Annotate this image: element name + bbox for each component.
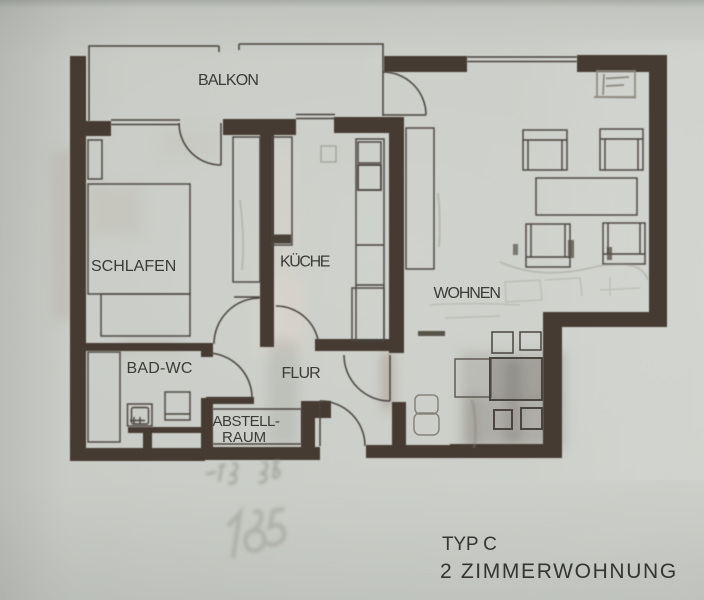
- svg-text:BALKON: BALKON: [198, 72, 258, 89]
- svg-text:SCHLAFEN: SCHLAFEN: [91, 258, 176, 275]
- svg-text:2 ZIMMERWOHNUNG: 2 ZIMMERWOHNUNG: [440, 560, 678, 583]
- svg-text:ABSTELL-: ABSTELL-: [213, 413, 280, 430]
- svg-text:TYP C: TYP C: [442, 534, 497, 555]
- svg-text:BAD-WC: BAD-WC: [127, 360, 193, 377]
- svg-text:FLUR: FLUR: [282, 365, 321, 382]
- svg-text:WOHNEN: WOHNEN: [434, 285, 501, 302]
- svg-text:KÜCHE: KÜCHE: [280, 253, 330, 271]
- svg-text:RAUM: RAUM: [222, 429, 266, 446]
